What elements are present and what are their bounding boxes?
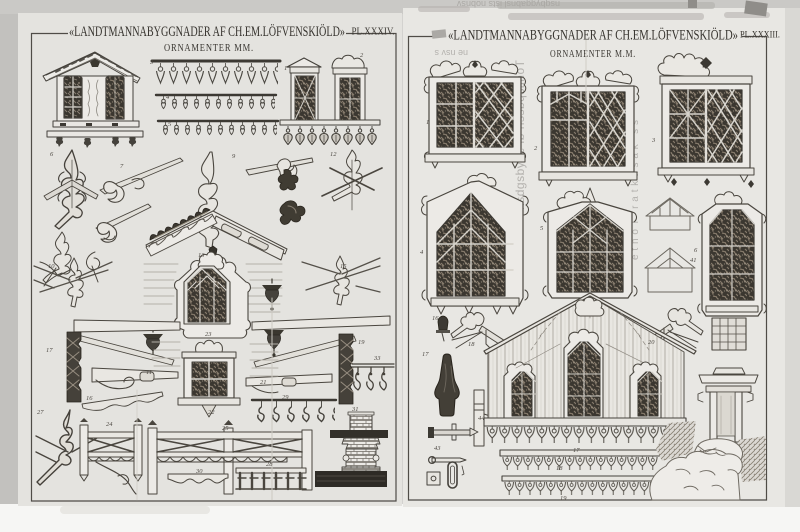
svg-text:20: 20: [648, 339, 655, 346]
svg-text:17: 17: [573, 447, 580, 454]
svg-text:29: 29: [282, 394, 289, 401]
svg-text:30: 30: [195, 468, 203, 475]
svg-text:nsqbyggabnsl ists nobnsv: nsqbyggabnsl ists nobnsv: [456, 0, 560, 9]
svg-text:31: 31: [351, 406, 359, 413]
svg-text:44: 44: [478, 415, 485, 422]
svg-text:33: 33: [373, 355, 381, 362]
svg-text:41: 41: [690, 257, 697, 264]
svg-text:22: 22: [208, 409, 215, 416]
svg-text:10: 10: [48, 263, 55, 270]
svg-text:ORNAMENTER MM.: ORNAMENTER MM.: [164, 43, 254, 54]
svg-text:«LANDTMANNABYGGNADER AF CH.EM.: «LANDTMANNABYGGNADER AF CH.EM.LÖFVENSKIÖ…: [448, 27, 738, 44]
svg-text:28: 28: [266, 461, 273, 468]
svg-text:24: 24: [106, 421, 113, 428]
svg-text:1: 1: [426, 119, 429, 126]
svg-text:18: 18: [468, 341, 475, 348]
svg-text:19: 19: [560, 495, 567, 502]
svg-text:1: 1: [284, 65, 287, 72]
svg-text:13: 13: [198, 252, 205, 259]
svg-text:16: 16: [432, 315, 439, 322]
svg-text:12: 12: [330, 151, 337, 158]
svg-text:PL.XXXIV.: PL.XXXIV.: [352, 27, 395, 38]
svg-text:«LANDTMANNABYGGNADER AF CH.EM.: «LANDTMANNABYGGNADER AF CH.EM.LÖFVENSKIÖ…: [69, 23, 345, 40]
svg-text:16: 16: [86, 395, 93, 402]
svg-text:43: 43: [434, 445, 441, 452]
svg-text:17: 17: [46, 347, 53, 354]
svg-text:17: 17: [422, 351, 429, 358]
svg-text:ne nsv s: ne nsv s: [434, 48, 468, 58]
svg-text:PL.XXXIII.: PL.XXXIII.: [740, 31, 780, 41]
svg-text:11: 11: [146, 369, 152, 376]
svg-text:ORNAMENTER M.M.: ORNAMENTER M.M.: [550, 49, 636, 60]
svg-text:27: 27: [37, 409, 44, 416]
svg-text:23: 23: [205, 331, 212, 338]
svg-text:19: 19: [358, 339, 365, 346]
svg-text:15: 15: [340, 263, 347, 270]
svg-text:25: 25: [222, 425, 229, 432]
svg-text:18: 18: [556, 465, 563, 472]
svg-text:21: 21: [260, 379, 267, 386]
